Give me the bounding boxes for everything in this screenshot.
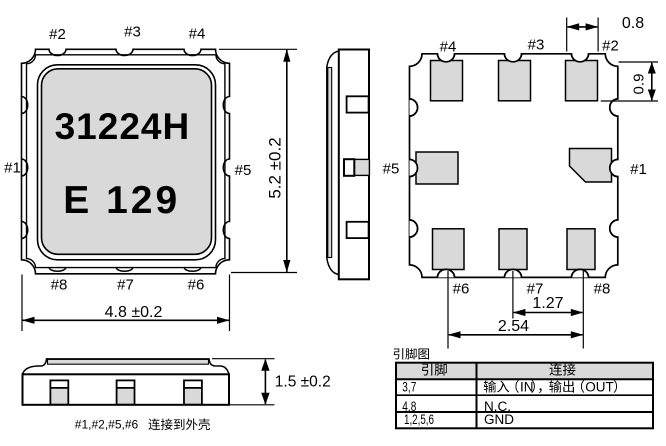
- svg-text:E 129: E 129: [63, 179, 180, 222]
- svg-text:GND: GND: [484, 412, 514, 427]
- svg-text:#5: #5: [235, 162, 252, 179]
- svg-text:1,2,5,6: 1,2,5,6: [404, 412, 434, 427]
- svg-text:0.9: 0.9: [631, 74, 648, 95]
- svg-text:0.8: 0.8: [622, 15, 644, 32]
- svg-text:#8: #8: [594, 281, 611, 298]
- svg-text:#3: #3: [124, 24, 141, 41]
- svg-text:2.54: 2.54: [498, 318, 529, 335]
- svg-text:#1: #1: [4, 160, 21, 177]
- svg-text:IN: IN: [520, 380, 534, 395]
- svg-text:#6: #6: [188, 277, 205, 294]
- svg-text:#2: #2: [49, 26, 66, 43]
- svg-text:#1: #1: [630, 161, 647, 178]
- svg-text:31224H: 31224H: [55, 106, 191, 147]
- svg-text:4.8 ±0.2: 4.8 ±0.2: [105, 304, 163, 321]
- svg-text:#2: #2: [602, 38, 619, 55]
- svg-text:#5: #5: [383, 161, 400, 178]
- svg-text:#8: #8: [51, 277, 68, 294]
- svg-text:#3: #3: [528, 37, 545, 54]
- svg-text:#4: #4: [189, 26, 206, 43]
- svg-text:#7: #7: [117, 277, 134, 294]
- svg-text:#1,#2,#5,#6: #1,#2,#5,#6: [75, 418, 139, 432]
- svg-text:#4: #4: [440, 39, 457, 56]
- svg-text:1.27: 1.27: [532, 295, 563, 312]
- svg-text:#6: #6: [453, 281, 470, 298]
- svg-text:OUT: OUT: [585, 380, 614, 395]
- svg-text:1.5 ±0.2: 1.5 ±0.2: [275, 373, 331, 390]
- svg-text:5.2 ±0.2: 5.2 ±0.2: [266, 137, 285, 198]
- svg-text:3,7: 3,7: [402, 380, 416, 395]
